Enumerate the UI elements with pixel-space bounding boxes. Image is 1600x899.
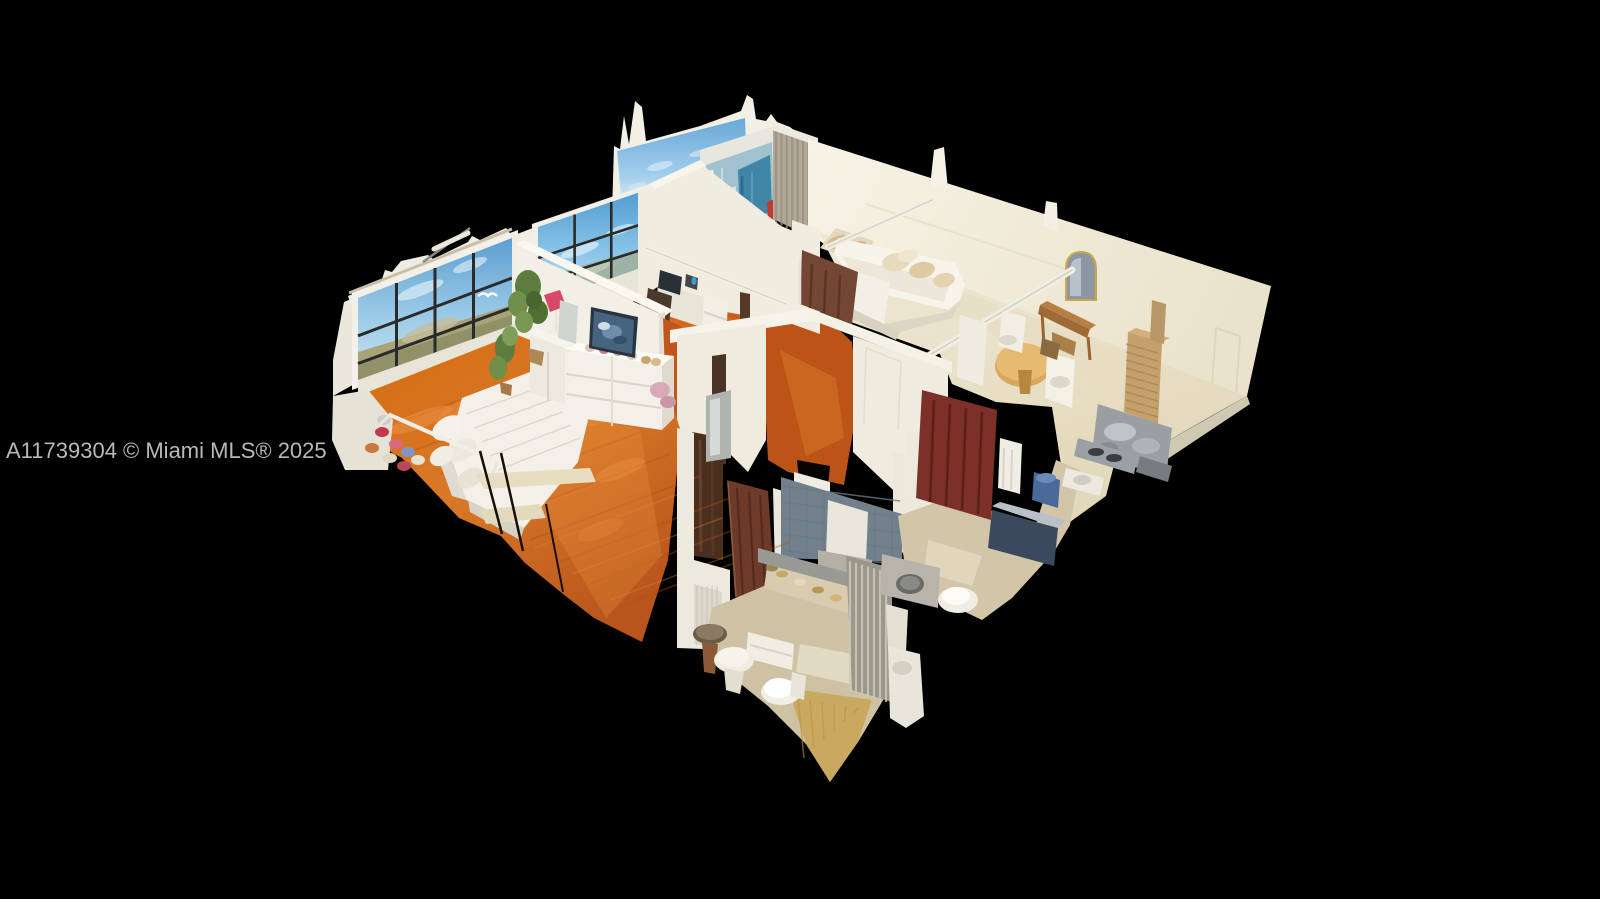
svg-text:A11739304 © Miami MLS® 2025: A11739304 © Miami MLS® 2025 (6, 438, 327, 463)
